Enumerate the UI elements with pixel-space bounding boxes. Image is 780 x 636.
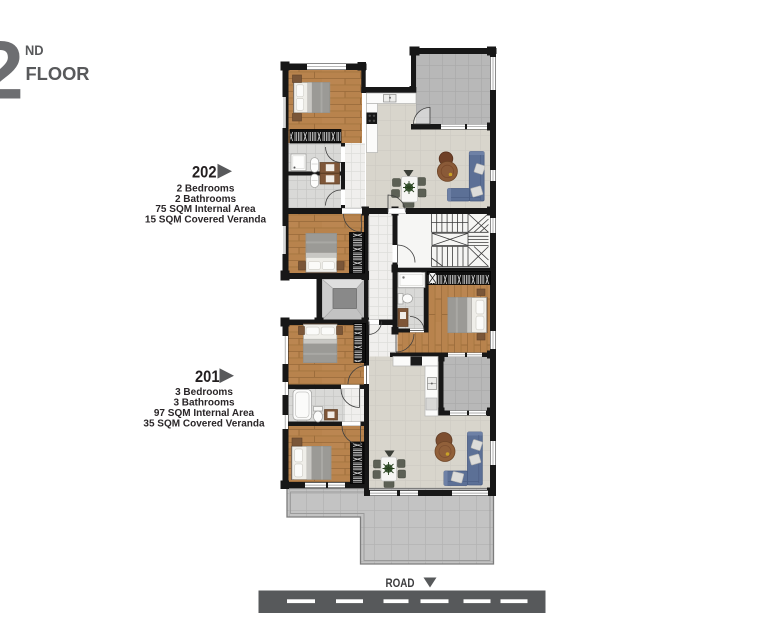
svg-text:2 Bedrooms: 2 Bedrooms xyxy=(177,183,235,194)
svg-text:97 SQM Internal Area: 97 SQM Internal Area xyxy=(154,408,255,419)
svg-text:3 Bathrooms: 3 Bathrooms xyxy=(173,398,235,409)
svg-text:75 SQM Internal Area: 75 SQM Internal Area xyxy=(155,204,256,215)
svg-text:ROAD: ROAD xyxy=(386,576,415,590)
svg-text:201: 201 xyxy=(195,368,220,386)
svg-text:202: 202 xyxy=(192,164,217,182)
svg-text:ND: ND xyxy=(25,42,44,58)
svg-text:3 Bedrooms: 3 Bedrooms xyxy=(175,387,233,398)
svg-text:2: 2 xyxy=(0,24,24,117)
svg-text:2 Bathrooms: 2 Bathrooms xyxy=(175,194,237,205)
svg-text:35 SQM Covered Veranda: 35 SQM Covered Veranda xyxy=(143,418,265,429)
svg-text:15 SQM Covered Veranda: 15 SQM Covered Veranda xyxy=(145,215,267,226)
svg-text:FLOOR: FLOOR xyxy=(26,63,90,84)
